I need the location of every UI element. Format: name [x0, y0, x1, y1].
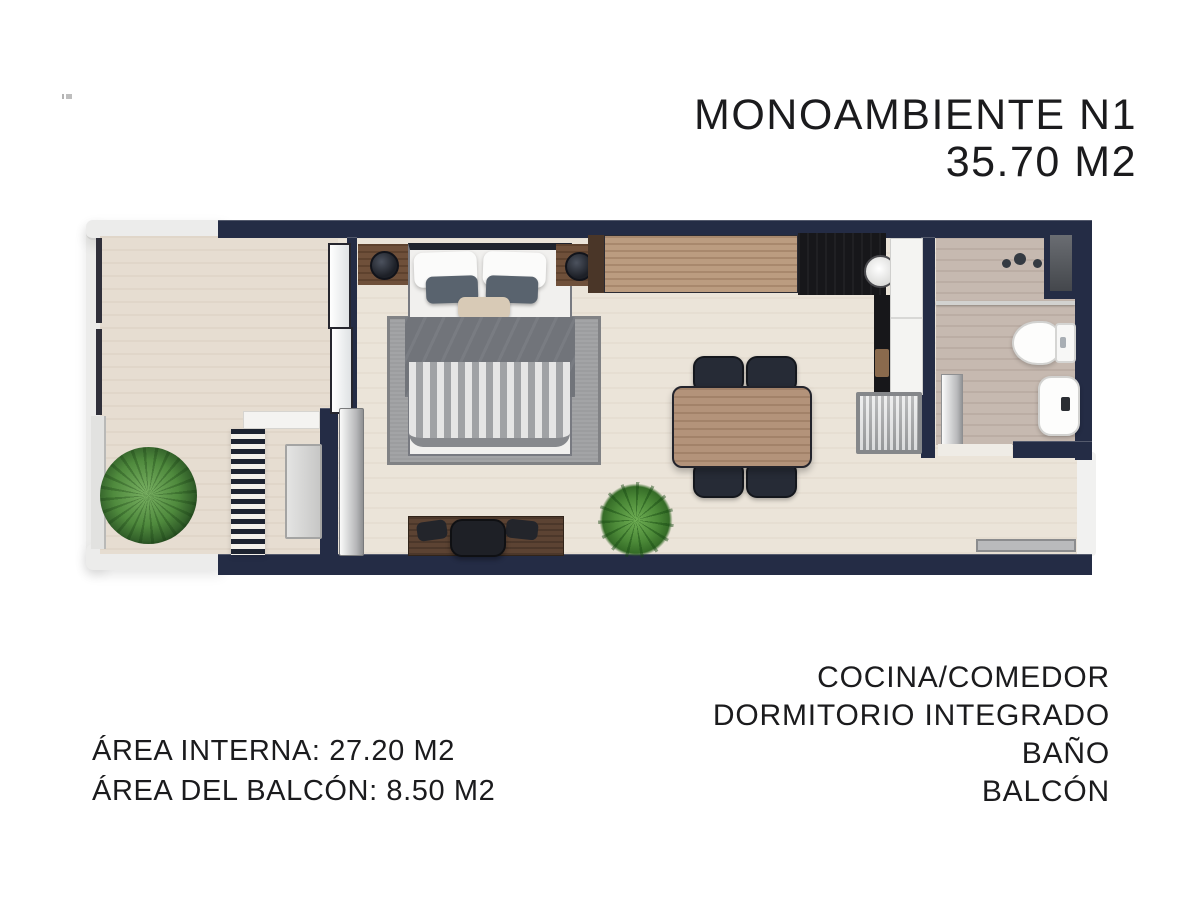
room-list-item: DORMITORIO INTEGRADO [713, 697, 1110, 735]
balcony-area-label: ÁREA DEL BALCÓN: 8.50 M2 [92, 771, 495, 811]
wall-bottom [218, 554, 1092, 575]
bedside-lamp-left [370, 251, 399, 280]
tall-cabinet-fridge [890, 238, 923, 395]
shower-fixture [1033, 259, 1042, 268]
sliding-door-glass-lower [330, 327, 353, 414]
living-plant [598, 482, 674, 558]
sliding-door-glass-upper [328, 243, 351, 329]
desk-chair [450, 519, 506, 557]
wall-bathroom-left [921, 237, 935, 458]
washing-machine [856, 392, 922, 454]
balcony-shelf [243, 411, 320, 429]
sliding-door-open-panel [339, 408, 364, 556]
bathroom-door-open [941, 374, 963, 447]
bathroom-window-glass [1050, 235, 1072, 291]
balcony-ladder [231, 429, 265, 555]
kitchen-cutting-board [875, 349, 889, 377]
kitchen-counter-side [874, 295, 890, 392]
toilet-flush [1060, 337, 1066, 348]
wall-balcony-divider [320, 408, 338, 556]
desk-item-right [505, 518, 539, 540]
shower-fixture [1002, 259, 1011, 268]
bidet-sink [1038, 376, 1080, 436]
room-list-item: COCINA/COMEDOR [713, 659, 1110, 697]
accent-pillow [458, 297, 510, 319]
shower-drain [1014, 253, 1026, 265]
room-list: COCINA/COMEDOR DORMITORIO INTEGRADO BAÑO… [713, 659, 1110, 811]
kitchen-counter-wood [604, 235, 798, 293]
balcony-bench [285, 444, 322, 539]
bathroom-threshold [938, 444, 1012, 456]
shower-glass-partition [936, 301, 1075, 305]
entry-doormat [976, 539, 1076, 552]
bidet-tap [1061, 397, 1070, 411]
kitchen-counter-end-panel [588, 235, 604, 293]
area-summary: ÁREA INTERNA: 27.20 M2 ÁREA DEL BALCÓN: … [92, 731, 495, 811]
floor-plan-page: MONOAMBIENTE N1 35.70 M2 [0, 0, 1200, 900]
room-list-item: BALCÓN [713, 773, 1110, 811]
dining-table [672, 386, 812, 468]
balcony-plant [100, 447, 197, 544]
balcony-glass-railing-lower [96, 329, 102, 415]
entry-exterior-trim [1077, 452, 1096, 556]
striped-bedspread [409, 362, 570, 447]
wall-bathroom-bottom [1013, 441, 1092, 458]
room-list-item: BAÑO [713, 735, 1110, 773]
internal-area-label: ÁREA INTERNA: 27.20 M2 [92, 731, 495, 771]
balcony-glass-railing-upper [96, 238, 102, 323]
